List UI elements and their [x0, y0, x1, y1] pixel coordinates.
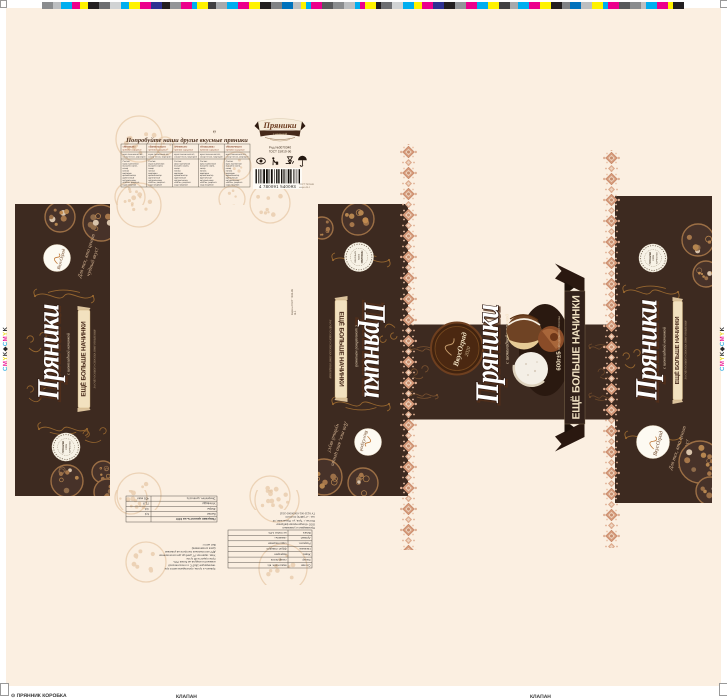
svg-text:Пряники: Пряники [358, 302, 393, 398]
svg-text:ЕЩЁ БОЛЬШЕ НАЧИНКИ: ЕЩЁ БОЛЬШЕ НАЧИНКИ [80, 321, 88, 397]
svg-text:с начинкой: с начинкой [273, 132, 288, 136]
svg-text:мука пшеничная в/с,: мука пшеничная в/с, [200, 153, 221, 156]
svg-text:пряники сырцовые: пряники сырцовые [174, 149, 194, 152]
svg-text:не более 14%: не более 14% [268, 531, 287, 535]
svg-text:100%: 100% [65, 443, 68, 450]
svg-text:сода пищевая: сода пищевая [200, 184, 214, 187]
svg-text:Влага: Влага [302, 531, 310, 535]
svg-text:6,9: 6,9 [144, 512, 149, 516]
svg-text:Белки: Белки [207, 512, 216, 516]
svg-text:тел.: +7 (4872) 00-00-00: тел.: +7 (4872) 00-00-00 [285, 515, 315, 518]
svg-text:«Молочные»: «Молочные» [226, 146, 243, 149]
svg-text:Углеводы: Углеводы [202, 502, 215, 506]
svg-text:с шоколадной начинкой: с шоколадной начинкой [66, 332, 71, 375]
svg-text:сода пищевая: сода пищевая [174, 184, 188, 187]
svg-text:ЗА СЧЁТ ОСОБОГО СПОСОБА: ЗА СЧЁТ ОСОБОГО СПОСОБА [557, 316, 561, 354]
svg-text:℮: ℮ [213, 129, 216, 135]
svg-text:сахар-песок, маргарин: сахар-песок, маргарин [174, 156, 198, 159]
svg-text:мука пшеничная в/с,: мука пшеничная в/с, [226, 153, 247, 156]
svg-text:Россия, г. Тула, ул. Пряничная: Россия, г. Тула, ул. Пряничная, 12 [272, 519, 315, 522]
svg-text:Пищевая ценность на 100г: Пищевая ценность на 100г [175, 517, 215, 521]
svg-text:сода пищевая: сода пищевая [268, 542, 287, 546]
svg-text:сода пищевая: сода пищевая [226, 184, 240, 187]
svg-text:Попробуйте наши другие вкусные: Попробуйте наши другие вкусные пряники [125, 137, 248, 144]
svg-text:Пряники: Пряники [262, 121, 296, 130]
svg-text:Начинка: Начинка [299, 547, 310, 551]
svg-text:ГОСТ 15810-96: ГОСТ 15810-96 [269, 150, 292, 154]
svg-text:4 780091 540093: 4 780091 540093 [259, 184, 296, 189]
svg-text:сахар-песок, маргарин: сахар-песок, маргарин [123, 156, 147, 159]
svg-text:сахар-песок, маргарин: сахар-песок, маргарин [148, 156, 172, 159]
svg-text:пряники сырцовые: пряники сырцовые [226, 149, 246, 152]
svg-text:Энергетич. ценность: Энергетич. ценность [186, 496, 215, 500]
svg-text:Разрыхл.: Разрыхл. [298, 542, 310, 546]
svg-text:Сахар: Сахар [302, 558, 311, 562]
svg-text:фрукт. повидло: фрукт. повидло [266, 547, 286, 551]
svg-text:4,6: 4,6 [144, 507, 149, 511]
svg-text:мука пшеничная в/с,: мука пшеничная в/с, [148, 153, 169, 156]
svg-text:Произведено и упаковано:: Произведено и упаковано: [282, 526, 315, 529]
svg-text:71,9: 71,9 [143, 502, 149, 506]
svg-text:100%: 100% [652, 254, 655, 261]
svg-text:Аромат.: Аромат. [300, 536, 310, 540]
svg-text:КАЧЕСТВО: КАЧЕСТВО [655, 252, 658, 264]
svg-text:Состав: Состав [301, 563, 311, 567]
svg-text:«Мятные»: «Мятные» [123, 146, 137, 149]
svg-text:405 ккал: 405 ккал [137, 496, 149, 500]
svg-text:с шоколадной начинкой: с шоколадной начинкой [355, 325, 360, 368]
svg-text:Вес нетто:: Вес нетто: [202, 543, 215, 546]
svg-text:ЕЩЁ БОЛЬШЕ НАЧИНКИ: ЕЩЁ БОЛЬШЕ НАЧИНКИ [338, 311, 346, 387]
svg-text:пряники сырцовые: пряники сырцовые [148, 149, 168, 152]
svg-text:маргарин: маргарин [274, 553, 287, 557]
svg-text:Пряники: Пряники [470, 304, 506, 403]
svg-text:«Ванильные»: «Ванильные» [148, 146, 166, 149]
svg-text:Пряники: Пряники [31, 304, 66, 400]
svg-text:ЗА СЧЁТ ОСОБОГО СПОСОБА ПРИГОТ: ЗА СЧЁТ ОСОБОГО СПОСОБА ПРИГОТОВЛЕНИЯ [93, 329, 97, 388]
svg-text:мука пшеничная в/с,: мука пшеничная в/с, [174, 153, 195, 156]
svg-text:Пряники: Пряники [629, 299, 664, 401]
svg-text:ООО «Кондитерская фабрика»: ООО «Кондитерская фабрика» [275, 522, 315, 525]
svg-text:с шоколадной начинкой: с шоколадной начинкой [662, 326, 667, 369]
svg-text:«Нежные»: «Нежные» [174, 146, 188, 149]
svg-text:мука пшеничная в/с,: мука пшеничная в/с, [123, 153, 144, 156]
svg-text:ЗА СЧЁТ ОСОБОГО СПОСОБА ПРИГОТ: ЗА СЧЁТ ОСОБОГО СПОСОБА ПРИГОТОВЛЕНИЯ [684, 320, 688, 379]
svg-text:сода пищевая: сода пищевая [148, 184, 162, 187]
svg-text:мука пшен. в/с: мука пшен. в/с [267, 563, 287, 567]
svg-text:«ваниль»: «ваниль» [274, 536, 287, 540]
svg-text:КАЧЕСТВО: КАЧЕСТВО [68, 441, 71, 453]
svg-text:ЕЩЁ БОЛЬШЕ НАЧИНКИ: ЕЩЁ БОЛЬШЕ НАЧИНКИ [674, 317, 681, 385]
svg-text:ЕЩЁ БОЛЬШЕ НАЧИНКИ: ЕЩЁ БОЛЬШЕ НАЧИНКИ [571, 296, 583, 420]
svg-text:сахар-песок: сахар-песок [270, 558, 286, 562]
svg-text:100%: 100% [357, 254, 360, 261]
svg-text:КАЧЕСТВО: КАЧЕСТВО [354, 251, 357, 263]
svg-text:«Классика»: «Классика» [200, 146, 215, 149]
svg-text:пряники сырцовые: пряники сырцовые [123, 149, 143, 152]
svg-text:Жиры: Жиры [303, 553, 311, 557]
svg-text:ТУ 9133-001-00000000-2015: ТУ 9133-001-00000000-2015 [279, 512, 315, 515]
svg-text:Жиры: Жиры [207, 507, 215, 511]
svg-text:пряники сырцовые: пряники сырцовые [200, 149, 220, 152]
svg-text:сода пищевая: сода пищевая [123, 184, 137, 187]
svg-text:ЗА СЧЁТ ОСОБОГО СПОСОБА ПРИГОТ: ЗА СЧЁТ ОСОБОГО СПОСОБА ПРИГОТОВЛЕНИЯ [329, 320, 333, 379]
svg-text:сахар-песок, маргарин: сахар-песок, маргарин [200, 156, 224, 159]
